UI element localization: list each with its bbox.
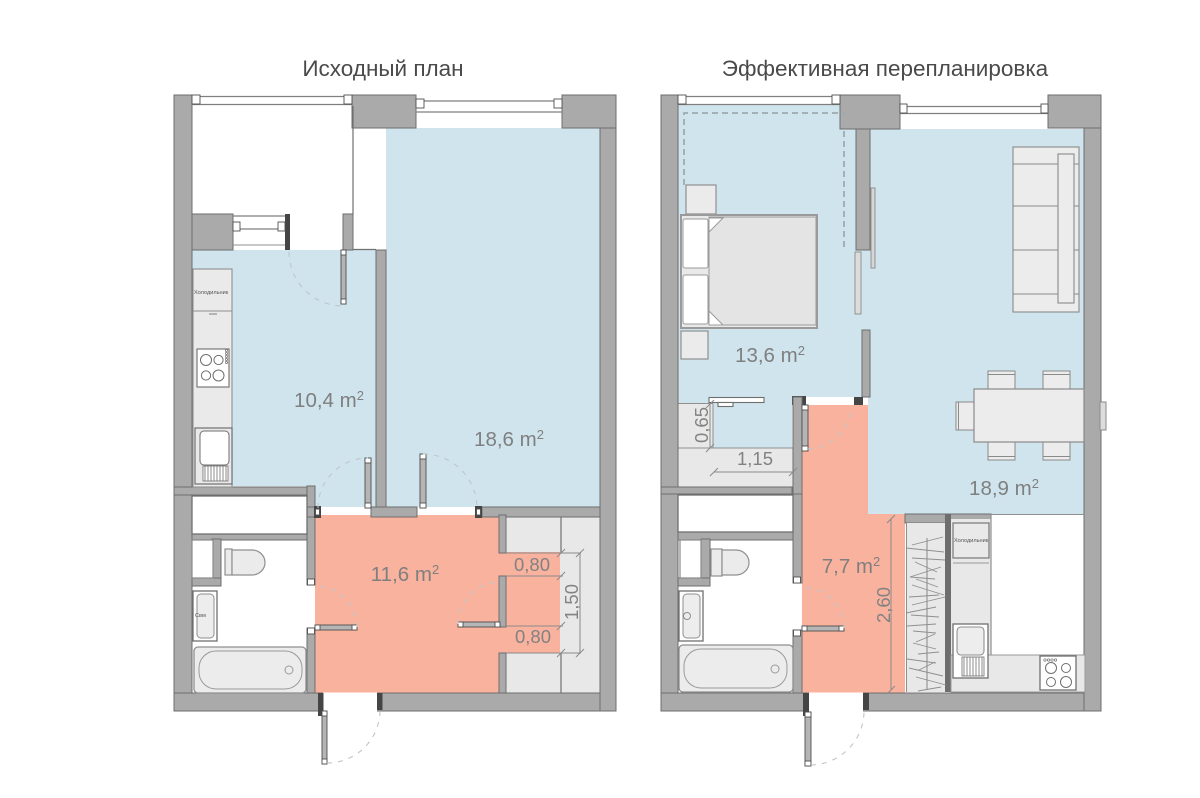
svg-text:1,15: 1,15 xyxy=(737,448,773,469)
svg-text:13,6 m2: 13,6 m2 xyxy=(735,343,805,367)
svg-text:7,7 m2: 7,7 m2 xyxy=(822,554,881,578)
svg-text:0,65: 0,65 xyxy=(691,407,712,443)
svg-text:10,4 m2: 10,4 m2 xyxy=(294,388,364,412)
svg-text:18,9 m2: 18,9 m2 xyxy=(969,476,1039,500)
svg-text:Исходный план: Исходный план xyxy=(302,56,463,81)
svg-text:11,6 m2: 11,6 m2 xyxy=(371,562,439,586)
svg-text:18,6 m2: 18,6 m2 xyxy=(474,427,544,451)
svg-text:Холодильник: Холодильник xyxy=(954,538,989,544)
svg-text:0,80: 0,80 xyxy=(515,626,551,647)
svg-text:Холодильник: Холодильник xyxy=(194,290,229,296)
svg-text:Свм: Свм xyxy=(195,613,206,619)
svg-text:2,60: 2,60 xyxy=(873,587,894,623)
svg-text:1,50: 1,50 xyxy=(561,584,582,620)
svg-text:Эффективная перепланировка: Эффективная перепланировка xyxy=(722,56,1049,81)
svg-text:0,80: 0,80 xyxy=(514,554,550,575)
